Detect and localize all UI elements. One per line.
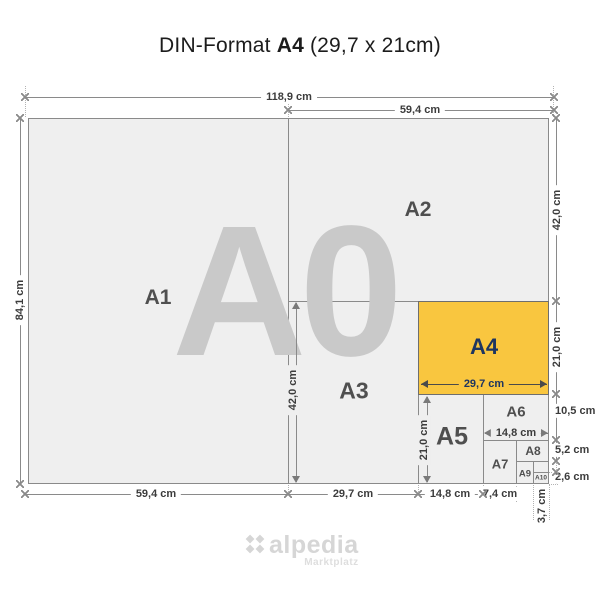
dim-label-a3-width: 29,7 cm [328,487,378,501]
logo-wordmark: alpedia [269,533,359,558]
dim-label-total-width: 118,9 cm [261,90,317,104]
dim-label-total-height: 84,1 cm [13,275,27,325]
dim-label-a3-height: 42,0 cm [286,365,300,415]
dim-label-a4-height: 21,0 cm [550,322,564,372]
alpedia-logo-icon [244,533,266,555]
dim-label-a5-width: 14,8 cm [425,487,475,501]
dim-tick-icon [552,114,560,122]
dim-label-a6-width: 14,8 cm [491,426,541,440]
dim-tick-icon [21,93,29,101]
dim-tick-icon [552,390,560,398]
dim-tick-icon [552,457,560,465]
label-a10: A10 [535,475,547,482]
dim-label-a6-height: 10,5 cm [552,404,598,418]
arrow-down-icon [292,476,300,483]
dim-tick-icon [284,106,292,114]
dim-extension [533,485,534,520]
dim-label-a1-width: 59,4 cm [131,487,181,501]
arrow-up-icon [292,302,300,309]
border-a7-right [516,440,517,484]
arrow-up-icon [423,396,431,403]
dim-label-a4-width: 29,7 cm [459,377,509,391]
dim-label-a10-width: 3,7 cm [535,484,549,528]
dim-label-a8-height: 5,2 cm [552,443,592,457]
arrow-right-icon [541,429,548,437]
alpedia-logo: alpedia Marktplatz [244,533,359,568]
dim-label-a2-height: 42,0 cm [550,185,564,235]
dim-tick-icon [552,436,560,444]
dim-tick-icon [550,93,558,101]
din-format-diagram: A0 A1 A2 A3 A4 A5 A6 A7 A8 A9 A10 118,9 … [0,0,600,600]
dim-tick-icon [284,490,292,498]
dim-extension [25,86,26,117]
label-a9: A9 [519,469,531,480]
label-a8: A8 [525,444,540,458]
dim-tick-icon [550,106,558,114]
arrow-right-icon [540,380,547,388]
label-a2: A2 [405,198,432,222]
dim-tick-icon [552,468,560,476]
dim-tick-icon [414,490,422,498]
label-a6: A6 [506,404,525,421]
dim-label-a5-height: 21,0 cm [417,415,431,465]
arrow-down-icon [423,476,431,483]
dim-tick-icon [552,297,560,305]
label-a5: A5 [436,423,468,452]
dim-tick-icon [16,114,24,122]
border-a5-right [483,394,484,484]
label-a4: A4 [470,334,498,360]
dim-tick-icon [21,490,29,498]
arrow-left-icon [421,380,428,388]
dim-tick-icon [479,490,487,498]
dim-label-a2-width: 59,4 cm [395,103,445,117]
dim-tick-icon [16,480,24,488]
label-a7: A7 [492,457,509,472]
watermark-a0: A0 [172,199,396,385]
label-a1: A1 [145,286,172,310]
logo-text: alpedia Marktplatz [269,533,359,568]
border-a10-top [533,472,549,473]
label-a3: A3 [339,378,368,405]
